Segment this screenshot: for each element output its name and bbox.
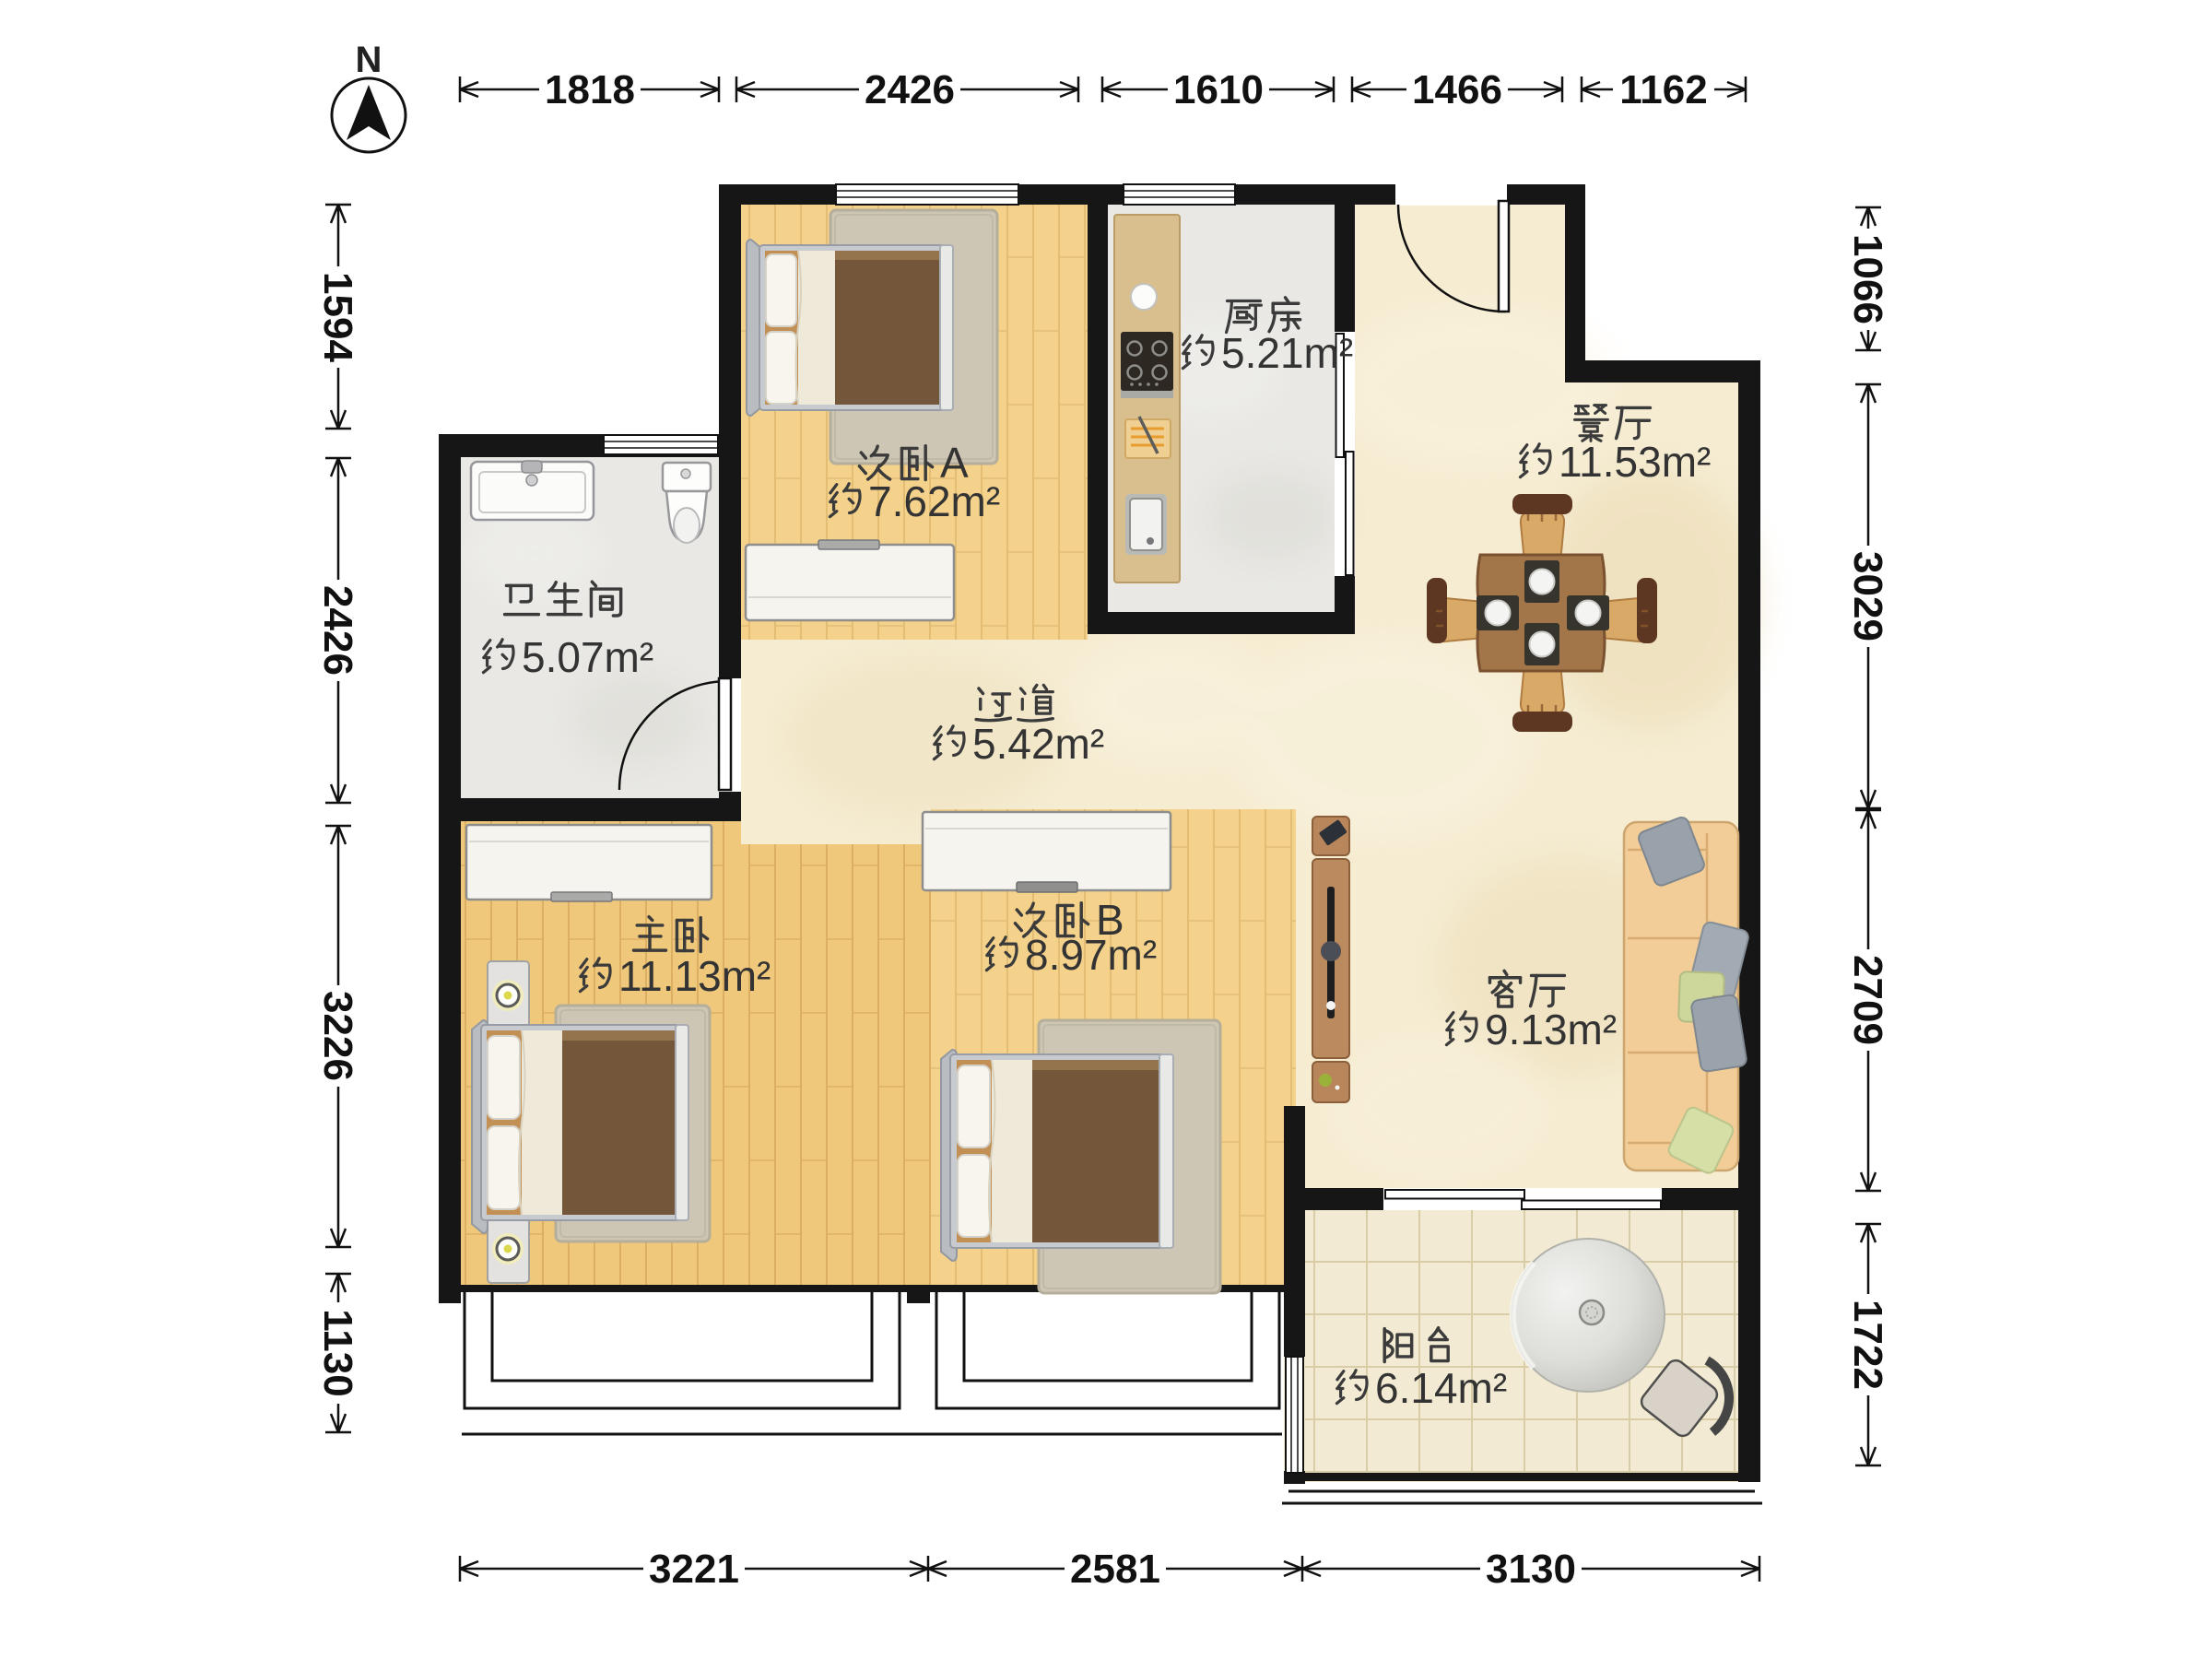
svg-text:5.07m²: 5.07m² <box>522 633 653 681</box>
svg-text:1818: 1818 <box>545 67 635 112</box>
svg-text:1610: 1610 <box>1173 67 1264 112</box>
svg-text:1594: 1594 <box>315 272 360 362</box>
svg-text:11.53m²: 11.53m² <box>1559 438 1711 486</box>
svg-text:3221: 3221 <box>649 1547 739 1592</box>
svg-text:2426: 2426 <box>315 585 360 676</box>
svg-text:3226: 3226 <box>315 991 360 1081</box>
svg-text:5.21m²: 5.21m² <box>1221 329 1353 377</box>
svg-text:2581: 2581 <box>1070 1547 1160 1592</box>
svg-text:2426: 2426 <box>865 67 955 112</box>
svg-text:5.42m²: 5.42m² <box>972 720 1104 768</box>
svg-text:1162: 1162 <box>1619 67 1707 112</box>
svg-text:3029: 3029 <box>1845 551 1890 641</box>
svg-text:9.13m²: 9.13m² <box>1485 1006 1617 1053</box>
svg-text:6.14m²: 6.14m² <box>1375 1364 1507 1412</box>
svg-text:8.97m²: 8.97m² <box>1025 931 1157 979</box>
svg-text:1066: 1066 <box>1845 234 1890 324</box>
svg-text:1466: 1466 <box>1412 67 1502 112</box>
svg-text:3130: 3130 <box>1486 1547 1576 1592</box>
svg-text:1130: 1130 <box>315 1309 360 1396</box>
svg-text:1722: 1722 <box>1845 1300 1890 1390</box>
svg-text:11.13m²: 11.13m² <box>618 952 771 1000</box>
svg-text:7.62m²: 7.62m² <box>868 477 1000 525</box>
svg-text:2709: 2709 <box>1845 955 1890 1045</box>
svg-text:N: N <box>356 40 382 80</box>
